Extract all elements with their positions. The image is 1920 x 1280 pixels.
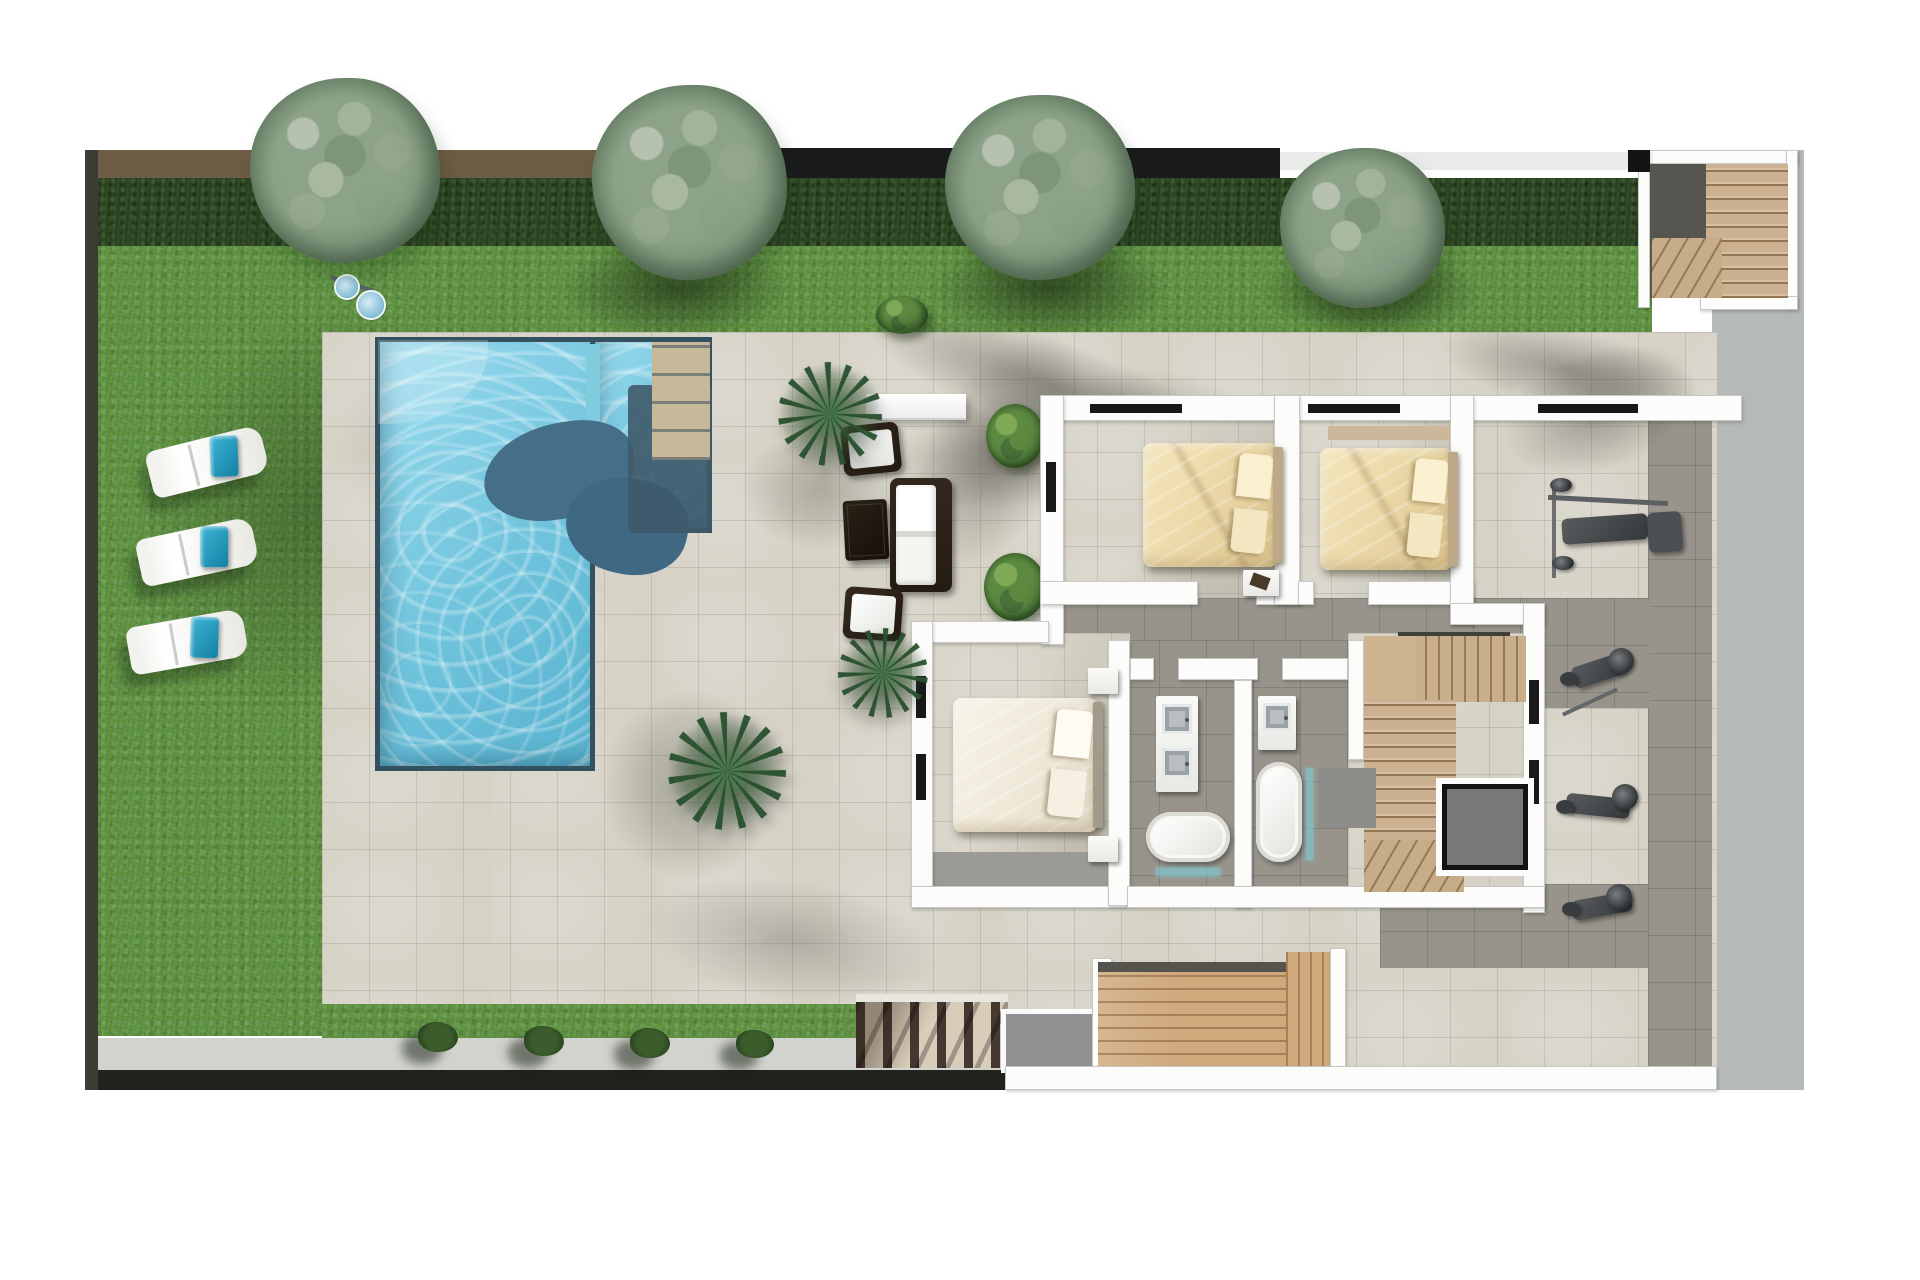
bathroom-divider-wall xyxy=(1234,680,1252,908)
sink xyxy=(1162,704,1192,734)
bathtub xyxy=(1146,812,1230,862)
gym-bike-wheel xyxy=(1608,648,1634,674)
garden-palm-tree xyxy=(1280,148,1445,308)
garden-palm-tree xyxy=(250,78,440,263)
shower-glass xyxy=(1156,868,1220,876)
elevator-shaft xyxy=(1442,784,1528,870)
window xyxy=(1529,680,1539,724)
round-bush xyxy=(984,553,1046,621)
stair-upper-steps xyxy=(1412,636,1526,702)
bedroom-2-bottom-wall xyxy=(1298,581,1314,605)
window xyxy=(1090,404,1182,413)
bathroom-top-wall xyxy=(1178,658,1258,680)
covered-area xyxy=(1006,1014,1094,1068)
wood-deck-side-steps xyxy=(1286,952,1334,1068)
sink xyxy=(1162,748,1192,778)
grass-bottom-strip xyxy=(322,1004,872,1040)
gym-weight-plate xyxy=(1550,478,1572,492)
floor-plan-canvas xyxy=(0,0,1920,1280)
shrub xyxy=(736,1030,774,1058)
deck-stairs-railing xyxy=(856,1002,1008,1068)
shower-glass xyxy=(1306,768,1313,860)
bed-double xyxy=(1320,448,1452,570)
outdoor-shower-head xyxy=(358,292,384,318)
nightstand xyxy=(1088,836,1118,862)
bathroom-top-wall xyxy=(1130,658,1154,680)
bedroom-1-left-wall xyxy=(1040,395,1064,645)
outdoor-shower-head xyxy=(336,276,358,298)
wood-deck-dark-edge xyxy=(1098,962,1290,972)
house-bottom-wall xyxy=(1005,1066,1717,1090)
gym-machine-wheel xyxy=(1612,784,1638,810)
bed-double xyxy=(1143,443,1277,567)
gym-bike-seat xyxy=(1560,672,1578,686)
gym-machine-seat xyxy=(1556,800,1574,814)
nightstand xyxy=(1088,668,1118,694)
pool-entry-steps xyxy=(652,342,710,460)
left-edge-wall xyxy=(85,150,98,1090)
bathroom-top-wall xyxy=(1282,658,1348,680)
bathroom-bottom-wall xyxy=(1127,886,1545,908)
bedroom-3-bottom-wall xyxy=(911,886,1127,908)
window xyxy=(916,754,926,800)
bedroom-1-bottom-wall xyxy=(1040,581,1198,605)
gate-post xyxy=(1628,150,1650,172)
entry-stairs-top-wall xyxy=(1638,150,1798,164)
entry-stairs-bottom-wall xyxy=(1700,296,1798,310)
bathtub xyxy=(1256,762,1302,862)
window xyxy=(1529,760,1539,804)
deck-wall xyxy=(1330,948,1346,1068)
window xyxy=(1046,462,1056,512)
window xyxy=(1308,404,1400,413)
wall-bottom-dark xyxy=(85,1070,1005,1090)
stair-landing-wood xyxy=(1364,636,1416,702)
headboard-shelf xyxy=(1328,426,1450,440)
bed-double xyxy=(953,698,1097,832)
shrub xyxy=(630,1028,670,1058)
entry-stairs-left-wall xyxy=(1638,150,1650,308)
entry-stairs-winders xyxy=(1652,238,1722,298)
sink xyxy=(1263,703,1291,731)
gym-machine-seat xyxy=(1562,902,1580,916)
gym-machine-wheel xyxy=(1606,884,1632,910)
garden-palm-tree xyxy=(945,95,1135,280)
round-bush-small xyxy=(876,296,928,334)
shrub xyxy=(418,1022,458,1052)
stair-landing-gray xyxy=(1318,768,1376,828)
stairs-room-left-wall xyxy=(1348,640,1364,760)
gym-weight-plate xyxy=(1552,556,1574,570)
wood-deck-steps xyxy=(1098,972,1290,1068)
garden-palm-tree xyxy=(592,85,787,280)
gym-bench-seat xyxy=(1647,511,1684,553)
shrub xyxy=(524,1026,564,1056)
window xyxy=(1538,404,1638,413)
round-bush xyxy=(986,404,1044,468)
